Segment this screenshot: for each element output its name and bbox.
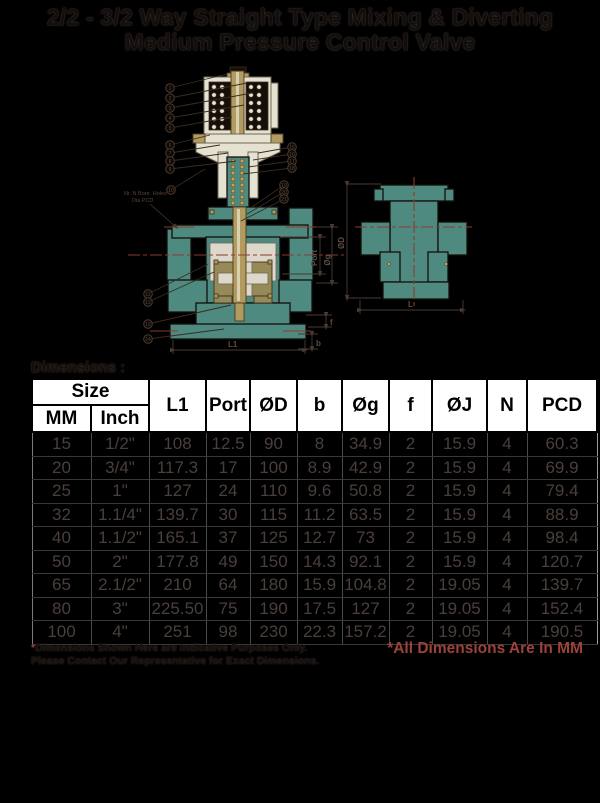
- table-cell: 2: [389, 432, 432, 456]
- flange-note-line1: Nr. N Bore. Holes: [124, 191, 167, 197]
- table-cell: 4: [487, 456, 527, 480]
- table-cell: 165.1: [149, 527, 206, 551]
- table-cell: 1.1/4": [91, 503, 149, 527]
- col-header-oj: ØJ: [432, 379, 487, 432]
- table-row: 401.1/2"165.13712512.773215.9498.4: [32, 527, 597, 551]
- table-cell: 92.1: [342, 550, 389, 574]
- table-cell: 230: [250, 621, 297, 645]
- actuator-assembly: [193, 67, 283, 209]
- col-header-size: Size: [32, 379, 149, 405]
- table-cell: 73: [342, 527, 389, 551]
- table-cell: 225.50: [149, 597, 206, 621]
- col-header-l1: L1: [149, 379, 206, 432]
- table-cell: 15.9: [432, 480, 487, 504]
- dim-label-f: f: [330, 318, 333, 327]
- table-cell: 2": [91, 550, 149, 574]
- table-cell: 100: [32, 621, 91, 645]
- table-cell: 2: [389, 574, 432, 598]
- table-cell: 157.2: [342, 621, 389, 645]
- flange-bore-note: Nr. N Bore. Holes Dia PCD: [124, 191, 176, 227]
- table-cell: 152.4: [527, 597, 597, 621]
- svg-text:14: 14: [145, 337, 151, 343]
- dimensions-table-header: Size L1 Port ØD b Øg f ØJ N PCD MM Inch: [32, 379, 597, 432]
- table-cell: 104.8: [342, 574, 389, 598]
- col-header-inch: Inch: [91, 405, 149, 432]
- table-cell: 9.6: [297, 480, 342, 504]
- table-cell: 210: [149, 574, 206, 598]
- table-cell: 3": [91, 597, 149, 621]
- dimension-lines-side: L: [360, 300, 463, 314]
- col-header-pcd: PCD: [527, 379, 597, 432]
- table-cell: 25: [32, 480, 91, 504]
- svg-text:8: 8: [169, 159, 172, 165]
- col-header-b: b: [297, 379, 342, 432]
- svg-text:9: 9: [169, 167, 172, 173]
- svg-text:1: 1: [169, 86, 172, 92]
- table-cell: 12.7: [297, 527, 342, 551]
- svg-text:4: 4: [169, 116, 172, 122]
- table-cell: 19.05: [432, 597, 487, 621]
- table-cell: 4": [91, 621, 149, 645]
- table-cell: 2: [389, 456, 432, 480]
- svg-text:13: 13: [145, 322, 151, 328]
- table-cell: 4: [487, 503, 527, 527]
- flange-note-line2: Dia PCD: [132, 198, 153, 204]
- table-cell: 127: [149, 480, 206, 504]
- table-cell: 4: [487, 550, 527, 574]
- table-row: 803"225.507519017.5127219.054152.4: [32, 597, 597, 621]
- table-cell: 3/4": [91, 456, 149, 480]
- table-cell: 32: [32, 503, 91, 527]
- main-section-view: Nr. N Bore. Holes Dia PCD Port Øg ØD: [124, 67, 381, 354]
- table-cell: 75: [206, 597, 250, 621]
- side-view: L: [355, 177, 472, 314]
- table-row: 652.1/2"2106418015.9104.8219.054139.7: [32, 574, 597, 598]
- table-row: 251"127241109.650.8215.9479.4: [32, 480, 597, 504]
- table-row: 321.1/4"139.73011511.263.5215.9488.9: [32, 503, 597, 527]
- dimensions-table: Size L1 Port ØD b Øg f ØJ N PCD MM Inch …: [31, 378, 598, 645]
- table-cell: 2: [389, 480, 432, 504]
- table-cell: 19.05: [432, 574, 487, 598]
- table-cell: 17.5: [297, 597, 342, 621]
- table-cell: 40: [32, 527, 91, 551]
- table-cell: 190: [250, 597, 297, 621]
- table-cell: 100: [250, 456, 297, 480]
- table-cell: 63.5: [342, 503, 389, 527]
- table-cell: 88.9: [527, 503, 597, 527]
- page-title-line1: 2/2 - 3/2 Way Straight Type Mixing & Div…: [0, 5, 600, 30]
- table-cell: 42.9: [342, 456, 389, 480]
- table-cell: 110: [250, 480, 297, 504]
- dimensions-table-body: 151/2"10812.590834.9215.9460.3203/4"117.…: [32, 432, 597, 644]
- table-cell: 4: [487, 432, 527, 456]
- table-cell: 150: [250, 550, 297, 574]
- table-cell: 2: [389, 550, 432, 574]
- table-cell: 12.5: [206, 432, 250, 456]
- table-cell: 90: [250, 432, 297, 456]
- col-header-port: Port: [206, 379, 250, 432]
- table-cell: 4: [487, 597, 527, 621]
- table-cell: 251: [149, 621, 206, 645]
- table-cell: 108: [149, 432, 206, 456]
- table-cell: 8.9: [297, 456, 342, 480]
- datasheet-page: 2/2 - 3/2 Way Straight Type Mixing & Div…: [0, 0, 600, 803]
- table-cell: 30: [206, 503, 250, 527]
- svg-text:3: 3: [169, 106, 172, 112]
- table-cell: 139.7: [527, 574, 597, 598]
- table-cell: 79.4: [527, 480, 597, 504]
- page-title-line2: Medium Pressure Control Valve: [0, 30, 600, 55]
- dim-label-l1: L1: [228, 340, 238, 349]
- table-cell: 65: [32, 574, 91, 598]
- table-cell: 2: [389, 527, 432, 551]
- table-cell: 11.2: [297, 503, 342, 527]
- table-cell: 120.7: [527, 550, 597, 574]
- dim-label-l: L: [408, 300, 413, 309]
- svg-text:18: 18: [289, 166, 295, 172]
- table-cell: 20: [32, 456, 91, 480]
- table-cell: 15.9: [432, 527, 487, 551]
- table-cell: 177.8: [149, 550, 206, 574]
- svg-text:2: 2: [169, 96, 172, 102]
- dim-label-port: Port: [310, 250, 319, 266]
- col-header-mm: MM: [32, 405, 91, 432]
- table-cell: 64: [206, 574, 250, 598]
- table-cell: 15.9: [432, 432, 487, 456]
- page-title: 2/2 - 3/2 Way Straight Type Mixing & Div…: [0, 5, 600, 55]
- table-cell: 4: [487, 480, 527, 504]
- footnote-all-dimensions-mm: *All Dimensions Are In MM: [387, 640, 583, 658]
- table-cell: 98.4: [527, 527, 597, 551]
- col-header-og: Øg: [342, 379, 389, 432]
- col-header-n: N: [487, 379, 527, 432]
- svg-text:6: 6: [169, 143, 172, 149]
- table-cell: 1.1/2": [91, 527, 149, 551]
- svg-text:7: 7: [169, 151, 172, 157]
- table-cell: 98: [206, 621, 250, 645]
- table-cell: 17: [206, 456, 250, 480]
- table-cell: 60.3: [527, 432, 597, 456]
- table-cell: 37: [206, 527, 250, 551]
- table-cell: 15.9: [432, 456, 487, 480]
- svg-text:21: 21: [281, 197, 287, 203]
- table-cell: 2: [389, 597, 432, 621]
- svg-text:12: 12: [145, 300, 151, 306]
- table-cell: 127: [342, 597, 389, 621]
- table-cell: 24: [206, 480, 250, 504]
- table-cell: 49: [206, 550, 250, 574]
- table-cell: 115: [250, 503, 297, 527]
- table-cell: 34.9: [342, 432, 389, 456]
- table-cell: 22.3: [297, 621, 342, 645]
- table-cell: 1": [91, 480, 149, 504]
- table-cell: 125: [250, 527, 297, 551]
- table-cell: 4: [487, 574, 527, 598]
- footnote-left: *Dimensions Shown Here are Indicative Pu…: [31, 642, 319, 668]
- dimensions-section-label: Dimensions :: [31, 359, 125, 376]
- table-cell: 1/2": [91, 432, 149, 456]
- table-cell: 15.9: [432, 550, 487, 574]
- table-cell: 2.1/2": [91, 574, 149, 598]
- table-cell: 69.9: [527, 456, 597, 480]
- footnote-left-line2: Please Contact Our Representative for Ex…: [31, 655, 319, 668]
- table-row: 502"177.84915014.392.1215.94120.7: [32, 550, 597, 574]
- col-header-f: f: [389, 379, 432, 432]
- table-cell: 14.3: [297, 550, 342, 574]
- dim-label-od: ØD: [337, 237, 346, 249]
- svg-text:10: 10: [168, 188, 174, 194]
- table-cell: 15.9: [432, 503, 487, 527]
- table-cell: 80: [32, 597, 91, 621]
- table-cell: 15.9: [297, 574, 342, 598]
- table-cell: 50: [32, 550, 91, 574]
- dim-label-og: Øg: [323, 254, 332, 265]
- table-cell: 8: [297, 432, 342, 456]
- table-cell: 15: [32, 432, 91, 456]
- col-header-od: ØD: [250, 379, 297, 432]
- svg-text:11: 11: [145, 292, 150, 298]
- svg-text:5: 5: [169, 126, 172, 132]
- table-cell: 50.8: [342, 480, 389, 504]
- table-cell: 4: [487, 527, 527, 551]
- table-cell: 139.7: [149, 503, 206, 527]
- table-cell: 180: [250, 574, 297, 598]
- dim-label-b: b: [316, 339, 321, 348]
- valve-technical-drawing: Nr. N Bore. Holes Dia PCD Port Øg ØD: [0, 57, 600, 369]
- footnote-left-line1: Dimensions Shown Here are Indicative Pur…: [35, 642, 307, 654]
- table-row: 151/2"10812.590834.9215.9460.3: [32, 432, 597, 456]
- table-cell: 2: [389, 503, 432, 527]
- table-row: 203/4"117.3171008.942.9215.9469.9: [32, 456, 597, 480]
- table-cell: 117.3: [149, 456, 206, 480]
